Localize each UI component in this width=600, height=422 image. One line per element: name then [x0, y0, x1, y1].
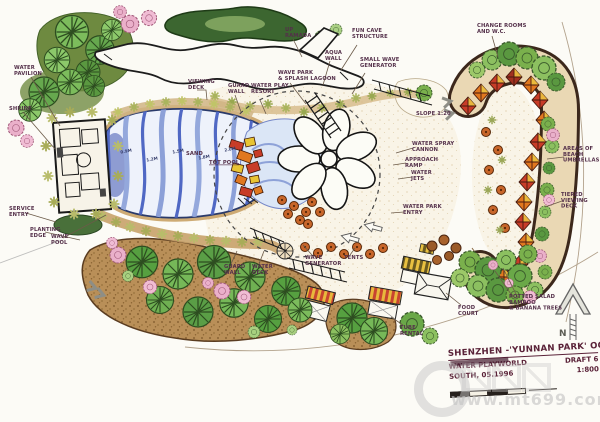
label-water-jets: WATER JETS — [411, 170, 432, 182]
label-approach-ramp: APPROACH RAMP — [405, 157, 438, 169]
label-wave-park: WAVE PARK & SPLASH LAGOON — [278, 70, 336, 82]
label-potted-trees: POTTED SALAD BAMBOO & BANANA TREES — [509, 294, 562, 311]
label-aqua-wall: AQUA WALL — [325, 50, 342, 62]
label-wave-generator-s: WAVE GENERATOR — [305, 255, 341, 267]
label-beach-umbrellas: AREAS OF BEACH UMBRELLAS — [563, 146, 599, 163]
label-wave-pool: WAVE POOL — [51, 234, 68, 246]
north-label: N — [559, 329, 567, 339]
label-viewing-deck: VIEWING DECK — [188, 79, 215, 91]
label-water-play: WATER PLAY RESORT — [251, 83, 289, 95]
label-park-entry: WATER PARK ENTRY — [403, 204, 442, 216]
label-up-ramada: UP RAMADA — [285, 27, 311, 39]
label-service-entry: SERVICE ENTRY — [9, 206, 35, 218]
label-water-pavilion: WATER PAVILION — [14, 65, 42, 77]
label-tot-pool: TOT POOL — [209, 160, 239, 166]
label-guard-wall-s: GUARD WALL — [224, 264, 245, 276]
label-tents: TENTS — [344, 255, 363, 261]
label-shrine: SHRINE — [9, 106, 32, 112]
label-water-deck: WATER DECK — [252, 264, 273, 276]
label-change-rooms: CHANGE ROOMS AND W.C. — [477, 23, 527, 35]
label-slope: SLOPE 1:20 — [416, 111, 451, 117]
label-tube-rental: TUBE RENTAL — [400, 325, 423, 337]
label-food-court: FOOD COURT — [458, 305, 478, 317]
label-guard-wall-n: GUARD WALL — [228, 83, 249, 95]
label-wave-generator-n: SMALL WAVE GENERATOR — [360, 57, 399, 69]
drawing-scale: 1:800 — [576, 365, 599, 374]
issue-note: SOUTH, 05.1996 — [449, 370, 514, 381]
label-spray-cannon: WATER SPRAY CANNON — [412, 141, 454, 153]
label-fun-cave: FUN CAVE STRUCTURE — [352, 28, 388, 40]
title-block: SHENZHEN -'YUNNAN PARK' OCT WATER PLAYWO… — [448, 341, 600, 403]
spiral-stair — [277, 243, 293, 259]
landscape-master-plan: UP RAMADA WAVE PARK & SPLASH LAGOON FUN … — [0, 0, 600, 422]
draft-number: DRAFT 6 — [565, 355, 599, 365]
label-tiered-deck: TIERED VIEWING DECK — [561, 192, 588, 209]
